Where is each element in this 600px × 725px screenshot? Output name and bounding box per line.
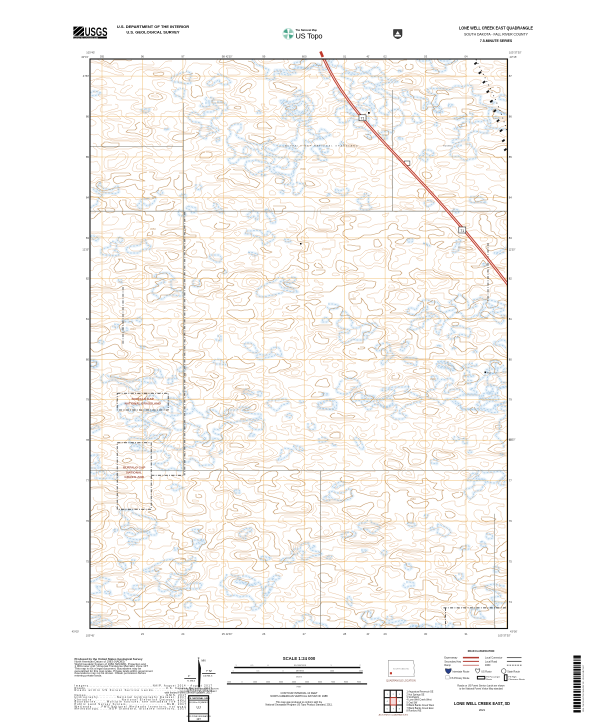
svg-text:31: 31 [464,632,468,636]
svg-text:23: 23 [141,632,145,636]
svg-text:43°00': 43°00' [72,630,80,634]
svg-text:595: 595 [100,55,105,58]
svg-text:97: 97 [181,54,185,58]
svg-text:3570: 3570 [430,377,436,381]
svg-text:83: 83 [86,236,90,240]
svg-text:103°45': 103°45' [86,634,95,638]
svg-text:U.S. NATIONAL GRID: U.S. NATIONAL GRID [188,697,210,700]
svg-text:2: 2 [359,665,360,667]
svg-text:77: 77 [86,479,90,483]
svg-text:71: 71 [361,117,365,121]
svg-text:26: 26 [262,632,266,636]
svg-text:2021: 2021 [479,708,486,712]
svg-text:71: 71 [460,229,464,233]
svg-text:entering private lands.: entering private lands. [75,673,103,677]
svg-text:3560: 3560 [410,497,416,501]
svg-text:UJ: UJ [197,706,201,710]
svg-text:1000: 1000 [330,670,334,672]
svg-text:80: 80 [86,357,90,361]
svg-text:8 Rumford NE: 8 Rumford NE [407,710,422,713]
svg-text:13T: 13T [196,717,201,721]
svg-text:3600: 3600 [350,297,356,301]
svg-text:1: 1 [232,670,233,672]
svg-text:METERS: METERS [296,670,305,672]
svg-text:07'30": 07'30" [509,439,516,442]
svg-text:100,000-m SQUARE ID: 100,000-m SQUARE ID [189,701,210,704]
svg-text:ROAD CLASSIFICATION: ROAD CLASSIFICATION [468,649,495,653]
svg-text:76: 76 [86,519,90,523]
svg-text:FEET: FEET [297,686,303,688]
svg-text:GRASSLAND: GRASSLAND [124,475,144,479]
svg-text:04: 04 [464,54,468,58]
svg-text:NATIONAL GRASSLAND: NATIONAL GRASSLAND [125,402,162,406]
svg-text:2000: 2000 [359,670,363,672]
svg-text:03: 03 [424,54,428,58]
svg-text:28: 28 [343,632,347,636]
svg-text:US Route: US Route [481,671,492,674]
svg-text:MILES: MILES [296,677,302,679]
svg-text:40': 40' [366,55,370,58]
svg-text:science for a changing world: science for a changing world [74,37,99,39]
svg-text:24: 24 [181,632,185,636]
svg-text:02: 02 [384,54,388,58]
svg-text:Local Connector: Local Connector [485,657,503,660]
svg-text:85: 85 [86,155,90,159]
svg-text:7° 52': 7° 52' [206,670,213,673]
svg-text:3620: 3620 [240,417,246,421]
svg-text:600: 600 [302,54,307,58]
svg-text:Roads on US Forest Service Lan: Roads on US Forest Service Lands are sho… [457,685,505,688]
svg-text:Clearance Route: Clearance Route [508,678,525,681]
svg-text:QUADRANGLE LOCATION: QUADRANGLE LOCATION [386,679,416,682]
svg-text:Expressway: Expressway [444,657,458,660]
svg-text:1: 1 [235,665,236,667]
svg-text:140 MILS: 140 MILS [203,676,213,678]
svg-text:LONE WELL CREEK EAST, SD: LONE WELL CREEK EAST, SD [454,701,510,707]
svg-text:3640: 3640 [130,327,136,331]
svg-text:27: 27 [303,632,307,636]
svg-text:7.5-MINUTE SERIES: 7.5-MINUTE SERIES [480,39,513,43]
svg-text:99: 99 [262,54,266,58]
svg-text:NORTH AMERICAN VERTICAL DATUM: NORTH AMERICAN VERTICAL DATUM OF 1988 [270,694,328,698]
svg-text:81: 81 [86,317,90,321]
svg-text:NATIONAL: NATIONAL [126,470,142,474]
svg-text:82: 82 [509,276,513,280]
svg-text:79: 79 [86,398,90,402]
svg-text:71 MILS: 71 MILS [187,680,196,682]
svg-text:42'30": 42'30" [226,633,233,636]
svg-text:4787: 4787 [83,74,90,78]
svg-text:12'30": 12'30" [82,249,89,252]
svg-text:75: 75 [86,560,90,564]
svg-text:29: 29 [384,632,388,636]
svg-text:81: 81 [509,317,513,321]
svg-text:84: 84 [509,196,513,200]
svg-text:3660: 3660 [180,557,186,561]
svg-text:0.5: 0.5 [251,665,254,667]
svg-text:1 Angostura Reservoir SE: 1 Angostura Reservoir SE [407,691,434,694]
svg-text:Methodology.......NGP Standar: Methodology.......NGP Standard, dictated… [75,707,187,711]
svg-text:SCALE 1:24 000: SCALE 1:24 000 [283,656,316,661]
svg-text:43°15': 43°15' [81,55,89,59]
svg-text:BUFFALO GAP: BUFFALO GAP [132,397,154,401]
svg-text:4WD: 4WD [485,664,491,667]
svg-text:Secondary Hwy: Secondary Hwy [444,660,462,663]
svg-text:SOUTH DAKOTA: SOUTH DAKOTA [393,667,409,670]
svg-text:87: 87 [509,74,513,78]
svg-text:2 Hot Springs SE: 2 Hot Springs SE [407,693,425,696]
svg-text:12'30": 12'30" [509,249,516,252]
svg-text:MN: MN [202,659,206,663]
svg-text:86: 86 [86,115,90,119]
svg-text:State Route: State Route [507,671,520,674]
svg-text:3 Smithwick: 3 Smithwick [407,696,420,699]
svg-text:74: 74 [509,600,513,604]
svg-text:BUFFALO GAP: BUFFALO GAP [123,466,145,470]
svg-text:ADJOINING QUADRANGLES: ADJOINING QUADRANGLES [379,713,409,716]
svg-text:to the National Forest Visitor: to the National Forest Visitor Map stand… [459,687,503,690]
svg-text:103°37'30": 103°37'30" [498,634,511,638]
svg-text:01: 01 [343,54,347,58]
svg-text:0.5: 0.5 [257,670,260,672]
svg-text:FS Primary Route: FS Primary Route [450,677,470,680]
svg-text:103°37'30": 103°37'30" [509,51,522,55]
svg-text:83: 83 [509,236,513,240]
svg-text:Ramp: Ramp [444,664,451,667]
svg-text:Pull Well: Pull Well [443,145,452,147]
svg-text:74: 74 [86,600,90,604]
svg-text:Route: Route [486,678,493,681]
svg-text:7 Black Banks Creek East: 7 Black Banks Creek East [407,707,434,710]
svg-text:0: 0 [267,665,268,667]
svg-text:BUFFALO GAP NATIONAL GRASSLAND: BUFFALO GAP NATIONAL GRASSLAND [285,144,359,147]
svg-text:National Geospatial Program US: National Geospatial Program US Topo Prod… [266,704,333,707]
svg-text:US Topo: US Topo [296,32,323,41]
svg-text:75: 75 [509,560,513,564]
svg-text:86: 86 [509,115,513,119]
svg-text:5 Oral SW: 5 Oral SW [407,701,419,704]
svg-text:Local Road: Local Road [485,660,498,663]
svg-text:96: 96 [141,54,145,58]
svg-text:4°: 4° [188,675,190,678]
svg-text:0: 0 [282,670,283,672]
svg-text:KILOMETERS: KILOMETERS [294,665,307,667]
svg-text:Interstate Route: Interstate Route [452,671,470,674]
svg-text:1: 1 [330,665,331,667]
svg-text:3650: 3650 [150,227,156,231]
svg-text:LONE WELL CREEK EAST QUADRANGL: LONE WELL CREEK EAST QUADRANGLE [459,25,533,30]
svg-text:4 Lone Well Creek West: 4 Lone Well Creek West [407,699,432,702]
svg-text:SOUTH DAKOTA - FALL RIVER COUN: SOUTH DAKOTA - FALL RIVER COUNTY [464,33,528,37]
svg-text:79: 79 [509,398,513,402]
svg-text:85: 85 [509,155,513,159]
svg-text:82: 82 [86,276,90,280]
svg-text:43°15': 43°15' [510,55,518,59]
svg-text:DECLINATION AT CENTER OF SHEET: DECLINATION AT CENTER OF SHEET [180,690,218,693]
svg-text:43°00': 43°00' [510,630,518,634]
svg-text:80: 80 [509,357,513,361]
svg-text:30: 30 [424,632,428,636]
svg-text:40': 40' [366,633,370,636]
svg-text:3590: 3590 [300,167,306,171]
svg-text:76: 76 [509,519,513,523]
svg-text:U.S. GEOLOGICAL SURVEY: U.S. GEOLOGICAL SURVEY [126,29,180,34]
svg-text:NSN. 7643016417958 NGA REF: NSN. 7643016417958 NGA REF NO. USGSX24K7… [582,665,585,712]
svg-text:Well: Well [487,373,492,375]
svg-text:103°45': 103°45' [86,51,95,55]
svg-text:42'30": 42'30" [226,55,233,58]
svg-text:77: 77 [509,479,513,483]
svg-text:6 Black Banks Creek West: 6 Black Banks Creek West [407,704,435,707]
svg-text:84: 84 [86,196,90,200]
